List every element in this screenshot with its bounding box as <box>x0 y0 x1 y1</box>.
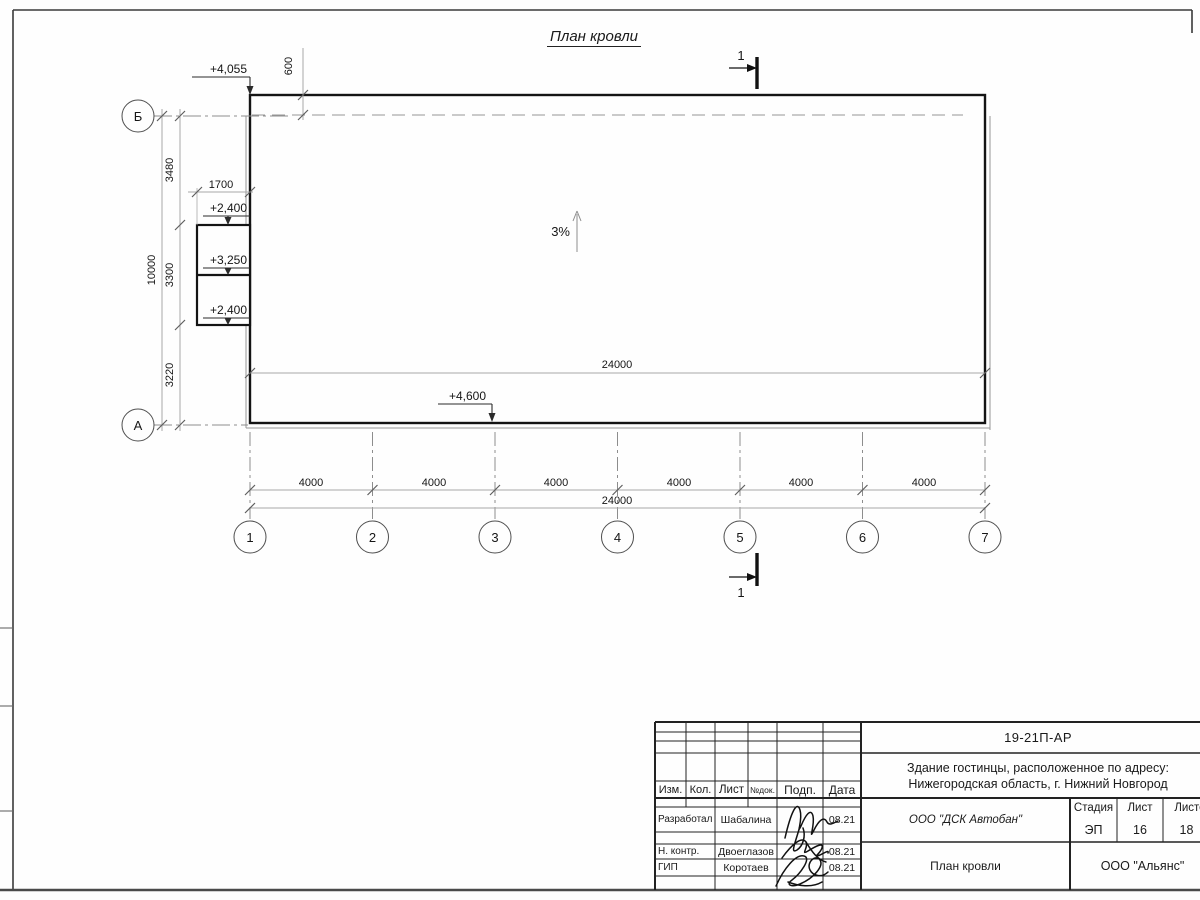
elevation-canopy: +4,600 <box>449 389 486 403</box>
titleblock-role-control: Н. контр. <box>658 844 715 859</box>
elevation-corner: +4,055 <box>210 62 247 76</box>
elevation-annex-mid: +3,250 <box>210 253 247 267</box>
dim-overhang: 600 <box>283 57 295 75</box>
titleblock-sheet-title: План кровли <box>861 842 1070 890</box>
dim-bottom-seg-4: 4000 <box>667 477 691 489</box>
slope-arrow <box>573 211 581 252</box>
titleblock-company: ООО "ДСК Автобан" <box>861 798 1070 842</box>
dim-annex-width: 1700 <box>209 179 233 191</box>
elevation-annex-bot: +2,400 <box>210 303 247 317</box>
elevation-annex-top: +2,400 <box>210 201 247 215</box>
dim-left-total: 10000 <box>146 255 158 286</box>
titleblock-col-podp: Подп. <box>777 781 823 798</box>
titleblock-stage-label: Стадия <box>1070 798 1117 817</box>
titleblock-sheet-value: 16 <box>1117 817 1163 842</box>
axis-label-1: 1 <box>246 530 253 545</box>
axis-label-3: 3 <box>491 530 498 545</box>
titleblock-col-ndok: №док. <box>748 781 777 798</box>
titleblock-date-developer: 08.21 <box>823 807 861 832</box>
dim-bottom-seg-3: 4000 <box>544 477 568 489</box>
titleblock-name-developer: Шабалина <box>715 807 777 832</box>
titleblock-sheet-label: Лист <box>1117 798 1163 817</box>
slope-label: 3% <box>551 224 570 239</box>
axis-label-4: 4 <box>614 530 621 545</box>
roof-outline <box>250 95 985 423</box>
dim-bottom-seg-2: 4000 <box>422 477 446 489</box>
drawing-sheet: Б А 1 2 3 4 5 6 7 +4,055 600 3480 3300 3… <box>0 0 1200 900</box>
wall-outline <box>246 115 990 430</box>
titleblock-col-izm: Изм. <box>655 781 686 798</box>
dim-bottom-seg-5: 4000 <box>789 477 813 489</box>
axis-label-2: 2 <box>369 530 376 545</box>
axis-label-a: А <box>134 418 143 433</box>
axis-label-5: 5 <box>736 530 743 545</box>
dim-left-seg-1: 3480 <box>164 158 176 182</box>
titleblock-doc-number: 19-21П-АР <box>861 722 1200 753</box>
signature-gip <box>776 856 828 886</box>
dim-left-seg-3: 3220 <box>164 363 176 387</box>
section-number-bottom: 1 <box>737 585 744 600</box>
titleblock-name-control: Двоеглазов <box>715 844 777 859</box>
titleblock-role-gip: ГИП <box>658 859 715 876</box>
section-mark-bottom <box>729 553 757 586</box>
dimension-ticks <box>157 90 990 513</box>
titleblock-stage-value: ЭП <box>1070 817 1117 842</box>
titleblock-col-data: Дата <box>823 781 861 798</box>
titleblock-date-gip: 08.21 <box>823 859 861 876</box>
dim-bottom-seg-1: 4000 <box>299 477 323 489</box>
axis-label-b: Б <box>134 109 143 124</box>
titleblock-name-gip: Коротаев <box>715 859 777 876</box>
titleblock-project-name: Здание гостинцы, расположенное по адресу… <box>861 753 1200 798</box>
section-number-top: 1 <box>737 48 744 63</box>
titleblock-col-list: Лист <box>715 781 748 798</box>
axis-label-7: 7 <box>981 530 988 545</box>
drawing-title: План кровли <box>547 28 641 47</box>
titleblock-org: ООО "Альянс" <box>1070 842 1200 890</box>
axis-label-6: 6 <box>859 530 866 545</box>
dim-left-seg-2: 3300 <box>164 263 176 287</box>
dimension-lines <box>162 48 985 508</box>
dim-bottom-total: 24000 <box>602 495 633 507</box>
dim-inner-total: 24000 <box>602 359 633 371</box>
titleblock-sheets-label: Листов <box>1163 798 1200 817</box>
titleblock-role-developer: Разработал <box>658 807 715 832</box>
titleblock-col-kol: Кол. <box>686 781 715 798</box>
titleblock-date-control: 08.21 <box>823 844 861 859</box>
titleblock-sheets-value: 18 <box>1163 817 1200 842</box>
dim-bottom-seg-6: 4000 <box>912 477 936 489</box>
